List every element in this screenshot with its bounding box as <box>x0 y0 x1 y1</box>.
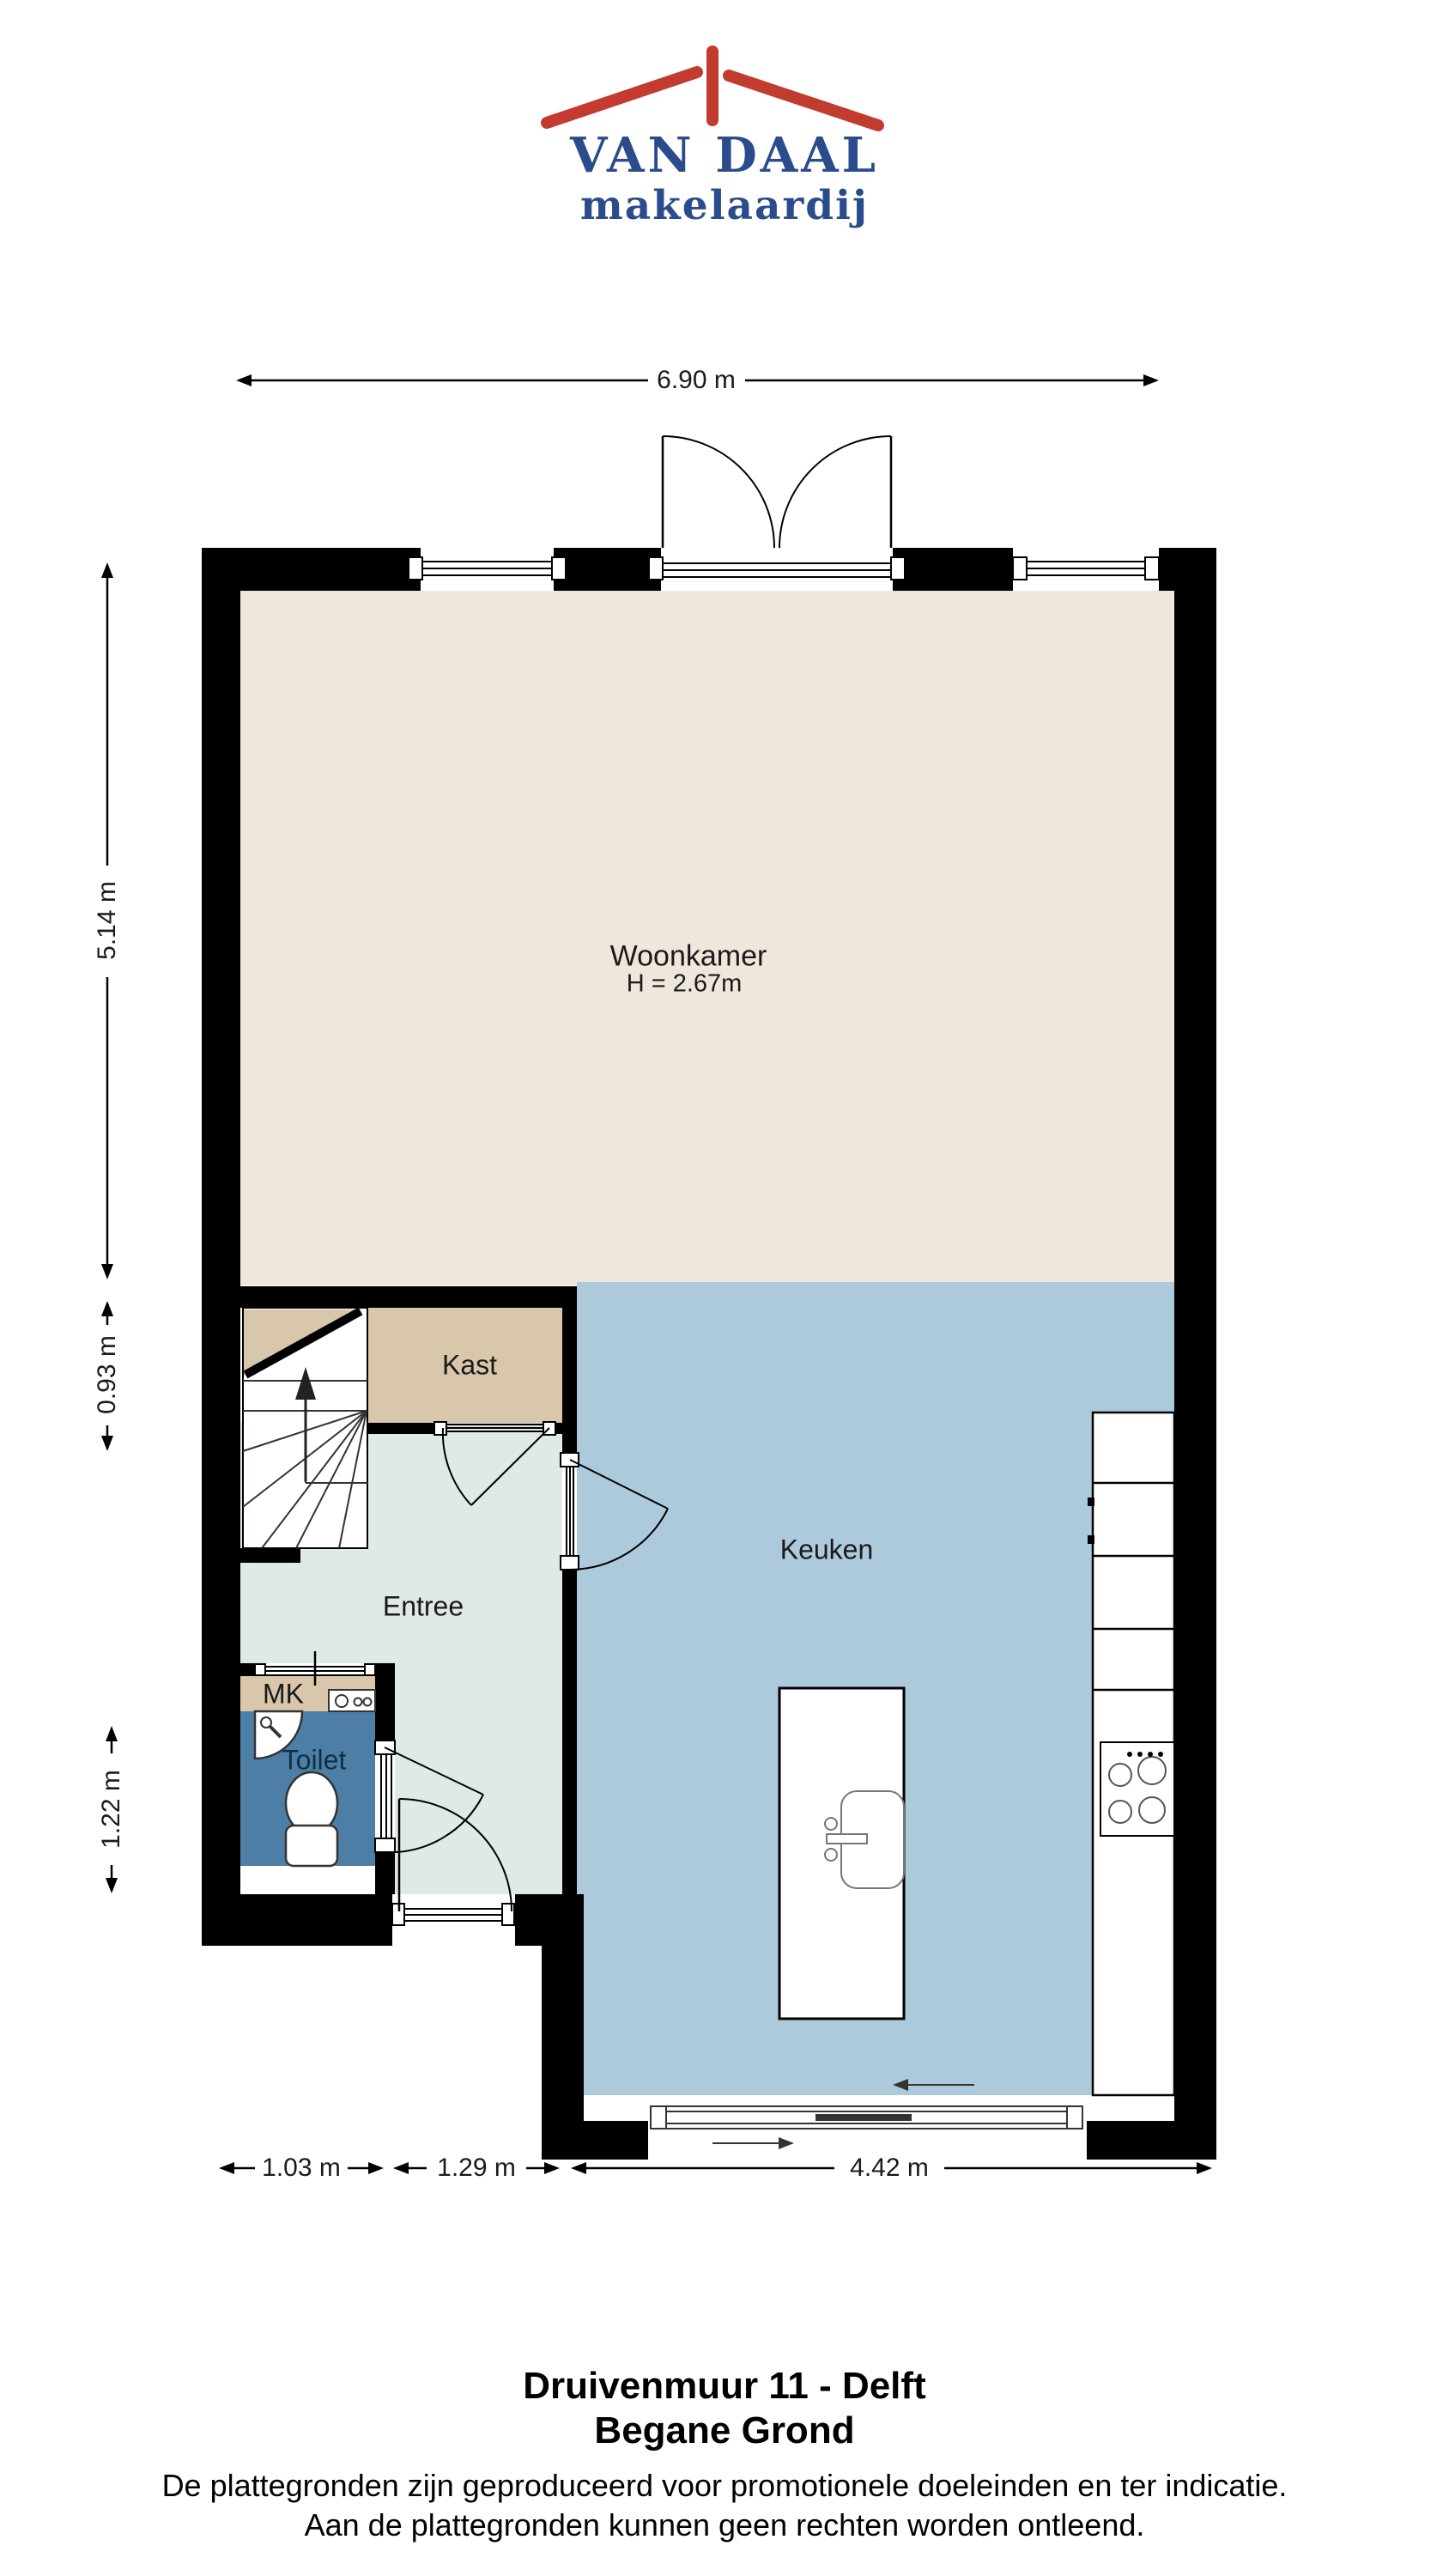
kitchen-counter <box>1088 1413 1174 2095</box>
mk-sink <box>329 1690 375 1711</box>
room-label-kast: Kast <box>442 1350 497 1382</box>
footer-disclaimer2: Aan de plattegronden kunnen geen rechten… <box>0 2507 1449 2543</box>
left-wall <box>202 548 240 1946</box>
dim-label-left-mid: 0.93 m <box>93 1332 122 1418</box>
dim-label-top: 6.90 m <box>653 366 739 395</box>
stairs-bottom-stub <box>202 1548 300 1563</box>
room-label-mk: MK <box>263 1679 304 1710</box>
room-label-entree: Entree <box>383 1591 464 1623</box>
sliding-door-handle <box>815 2114 912 2121</box>
mid-wall <box>202 1286 577 1308</box>
mk-wall-stub <box>240 1663 255 1676</box>
toilet-fixture <box>286 1772 337 1866</box>
logo-roof-icon <box>547 52 878 125</box>
logo-tagline: makelaardij <box>0 182 1449 229</box>
keuken-left-wall <box>542 1894 584 2160</box>
divider-wall <box>562 1308 577 1907</box>
footer-disclaimer1: De plattegronden zijn geproduceerd voor … <box>0 2468 1449 2504</box>
right-wall <box>1174 548 1216 2160</box>
footer-subtitle: Begane Grond <box>0 2409 1449 2452</box>
footer-title: Druivenmuur 11 - Delft <box>0 2365 1449 2408</box>
toilet-lower-strip <box>240 1866 375 1894</box>
dim-label-left-upper: 5.14 m <box>93 878 122 963</box>
room-label-woonkamer-height: H = 2.67m <box>627 970 743 999</box>
dim-label-bottom-mid: 1.29 m <box>433 2154 519 2183</box>
cooktop <box>1100 1742 1174 1836</box>
dim-label-bottom-right: 4.42 m <box>846 2154 932 2183</box>
room-label-keuken: Keuken <box>780 1534 874 1566</box>
room-label-toilet: Toilet <box>282 1745 347 1777</box>
room-label-woonkamer: Woonkamer <box>610 940 767 974</box>
logo-name: VAN DAAL <box>0 127 1449 184</box>
dim-label-left-lower: 1.22 m <box>97 1766 126 1852</box>
kitchen-island <box>779 1688 904 2019</box>
floorplan-page: VAN DAAL makelaardij Woonkamer H = 2.67m… <box>0 0 1449 2576</box>
woonkamer-floor <box>240 591 1174 1285</box>
kast-bottom-wall <box>367 1423 436 1434</box>
dim-label-bottom-left: 1.03 m <box>258 2154 344 2183</box>
